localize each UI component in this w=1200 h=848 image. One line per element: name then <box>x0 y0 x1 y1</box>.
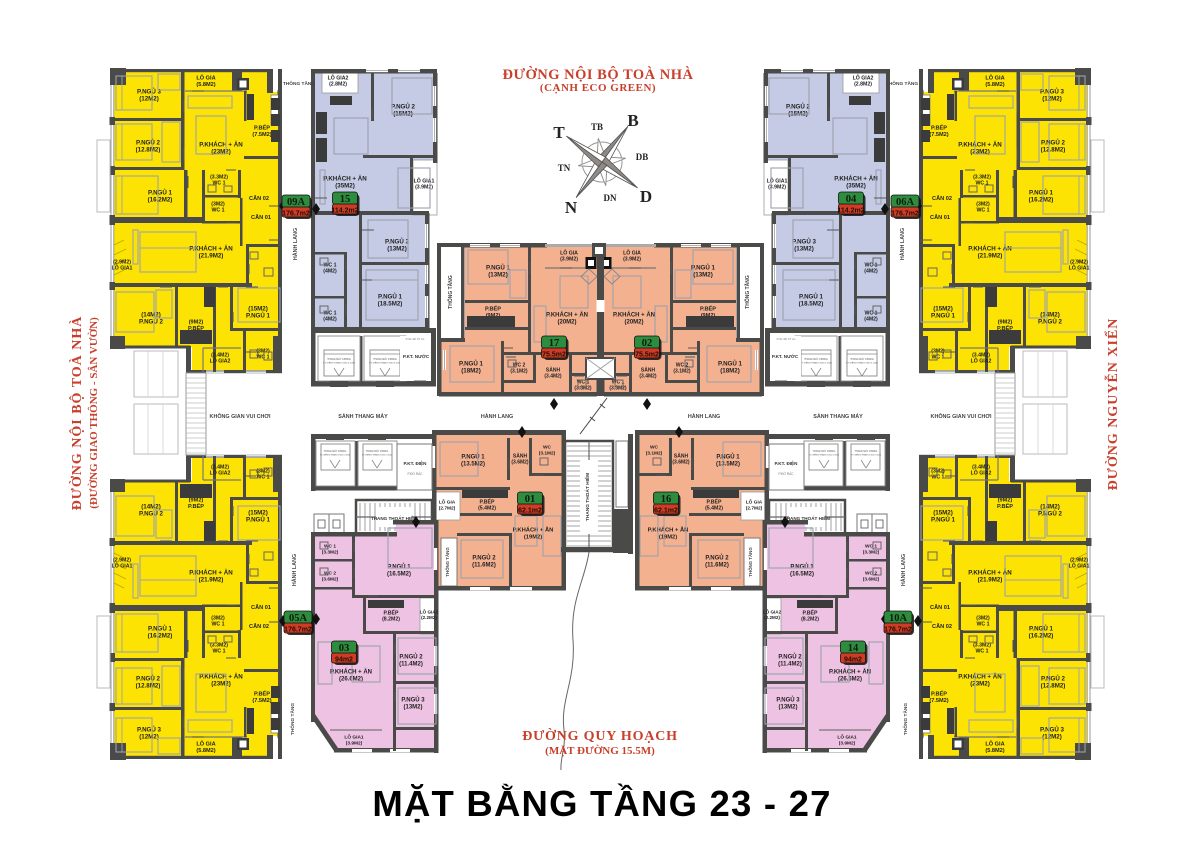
svg-text:10A: 10A <box>889 613 908 624</box>
svg-text:(3.6M2): (3.6M2) <box>322 576 339 582</box>
svg-text:(5.4M2): (5.4M2) <box>705 506 723 512</box>
svg-text:(12M2): (12M2) <box>1042 734 1062 741</box>
svg-text:(3M2): (3M2) <box>976 202 990 208</box>
svg-text:LÔ GIA: LÔ GIA <box>985 740 1004 748</box>
svg-text:DN: DN <box>604 193 617 203</box>
svg-text:P.NGỦ 1: P.NGỦ 1 <box>1029 190 1054 197</box>
svg-text:(3.4M2): (3.4M2) <box>639 374 657 380</box>
svg-text:LÔ GIA: LÔ GIA <box>560 249 578 257</box>
svg-text:94m2: 94m2 <box>844 657 862 664</box>
svg-text:(3.1M2): (3.1M2) <box>673 369 691 375</box>
svg-text:CĂN 01: CĂN 01 <box>251 214 271 221</box>
svg-text:CĂN 01: CĂN 01 <box>251 604 271 611</box>
svg-text:LÔ GIA1: LÔ GIA1 <box>1069 562 1090 570</box>
svg-text:(2.2M2): (2.2M2) <box>421 615 437 620</box>
svg-text:(23M2): (23M2) <box>970 681 990 688</box>
svg-text:(23M2): (23M2) <box>970 149 990 156</box>
svg-text:P.NGỦ 2: P.NGỦ 2 <box>139 319 164 326</box>
svg-text:14: 14 <box>848 643 859 654</box>
svg-text:(3.1M2): (3.1M2) <box>646 450 663 456</box>
svg-text:(5.4M2): (5.4M2) <box>478 506 496 512</box>
svg-text:HÀNH LANG: HÀNH LANG <box>899 228 906 260</box>
svg-text:LÔ GIA2: LÔ GIA2 <box>971 357 992 365</box>
svg-text:(4M2): (4M2) <box>323 269 337 275</box>
svg-text:KT GIẾNG THANG 1900 X 2000: KT GIẾNG THANG 1900 X 2000 <box>320 453 351 456</box>
svg-text:P.NGỦ 3: P.NGỦ 3 <box>1040 727 1065 734</box>
svg-text:(13M2): (13M2) <box>794 246 814 253</box>
svg-text:LÔ GIA: LÔ GIA <box>196 740 215 748</box>
svg-text:SẢNH: SẢNH <box>546 367 561 374</box>
svg-text:(9M2): (9M2) <box>998 498 1013 504</box>
svg-text:P.BẾP: P.BẾP <box>707 499 722 506</box>
svg-text:WC 2: WC 2 <box>865 571 877 577</box>
svg-text:(7.5M2): (7.5M2) <box>929 698 948 704</box>
svg-text:LÔ GIA1: LÔ GIA1 <box>1069 264 1090 272</box>
svg-text:KHÔNG GIAN VUI CHƠI: KHÔNG GIAN VUI CHƠI <box>931 412 992 420</box>
svg-text:75.5m2: 75.5m2 <box>542 352 566 359</box>
svg-text:B: B <box>627 111 638 130</box>
svg-text:P.NGỦ 2: P.NGỦ 2 <box>1038 511 1063 518</box>
svg-text:P.ĐỔ RÁC: P.ĐỔ RÁC <box>779 471 795 476</box>
svg-text:(16.2M2): (16.2M2) <box>148 197 173 204</box>
svg-text:P.BẾP: P.BẾP <box>188 503 204 510</box>
svg-text:(2.9M2): (2.9M2) <box>113 260 131 266</box>
svg-text:(3.3M2): (3.3M2) <box>210 175 228 181</box>
svg-text:P.NGỦ 1: P.NGỦ 1 <box>148 626 173 633</box>
svg-text:(3.1M2): (3.1M2) <box>510 369 528 375</box>
svg-text:KT GIẾNG THANG 1900 X 2000: KT GIẾNG THANG 1900 X 2000 <box>800 362 832 365</box>
svg-text:04: 04 <box>846 194 857 205</box>
svg-text:THANG THOÁT HIỂM: THANG THOÁT HIỂM <box>584 473 591 521</box>
svg-text:(23M2): (23M2) <box>211 149 231 156</box>
svg-text:75.5m2: 75.5m2 <box>635 352 659 359</box>
svg-text:114.2m2: 114.2m2 <box>331 208 358 215</box>
svg-text:P.KT. NƯỚC: P.KT. NƯỚC <box>403 352 430 359</box>
svg-text:WC 1: WC 1 <box>977 208 990 214</box>
svg-text:(16.2M2): (16.2M2) <box>148 633 173 640</box>
svg-text:P.KHÁCH + ĂN: P.KHÁCH + ĂN <box>199 142 243 149</box>
svg-text:(3.6M2): (3.6M2) <box>511 460 529 466</box>
svg-text:(20M2): (20M2) <box>557 320 576 326</box>
svg-text:P.NGỦ 2: P.NGỦ 2 <box>391 104 416 111</box>
svg-text:(18.5M2): (18.5M2) <box>799 301 824 308</box>
svg-text:LÔ GIA2: LÔ GIA2 <box>971 469 992 477</box>
svg-text:(3.4M2): (3.4M2) <box>972 465 990 471</box>
svg-text:(18M2): (18M2) <box>461 368 481 375</box>
svg-text:(19M2): (19M2) <box>659 534 677 540</box>
svg-text:P.NGỦ 1: P.NGỦ 1 <box>459 361 484 368</box>
svg-text:(35M2): (35M2) <box>335 183 355 190</box>
svg-text:(15M2): (15M2) <box>933 510 953 517</box>
svg-text:WC 1: WC 1 <box>976 649 989 655</box>
svg-text:HÀNH LANG: HÀNH LANG <box>688 413 720 420</box>
svg-text:WC 1: WC 1 <box>212 622 225 628</box>
svg-text:P.NGỦ 2: P.NGỦ 2 <box>705 555 729 562</box>
svg-text:62.1m2: 62.1m2 <box>654 508 678 515</box>
svg-text:WC 2: WC 2 <box>324 571 336 577</box>
svg-text:SẢNH: SẢNH <box>674 453 689 460</box>
svg-text:(12M2): (12M2) <box>139 96 159 103</box>
svg-text:KT GIẾNG THANG 1900 X 2000: KT GIẾNG THANG 1900 X 2000 <box>846 362 878 365</box>
svg-text:P.KT. NƯỚC: P.KT. NƯỚC <box>772 352 799 359</box>
svg-text:HÀNH LANG: HÀNH LANG <box>900 554 907 586</box>
svg-text:(13.5M2): (13.5M2) <box>716 462 740 468</box>
svg-text:(9M2): (9M2) <box>998 320 1013 326</box>
svg-text:P.BẾP: P.BẾP <box>384 610 399 617</box>
svg-text:P.NGỦ 2: P.NGỦ 2 <box>139 511 164 518</box>
svg-text:(3M2): (3M2) <box>211 202 225 208</box>
svg-text:WC 1: WC 1 <box>977 622 990 628</box>
svg-text:KT GIẾNG THANG 1900 X 2000: KT GIẾNG THANG 1900 X 2000 <box>809 453 840 456</box>
svg-text:LÔ GIA1: LÔ GIA1 <box>414 177 435 185</box>
svg-text:THÔNG TẦNG: THÔNG TẦNG <box>743 275 751 309</box>
svg-text:(3.6M2): (3.6M2) <box>863 576 880 582</box>
svg-text:LÔ GIA1: LÔ GIA1 <box>112 562 133 570</box>
svg-text:(16.5M2): (16.5M2) <box>790 572 814 578</box>
svg-text:THANG MÁY 1350KG: THANG MÁY 1350KG <box>855 450 878 453</box>
svg-text:WC 1: WC 1 <box>213 649 226 655</box>
svg-text:P.NGỦ 1: P.NGỦ 1 <box>716 454 740 461</box>
svg-text:P.NGỦ 2: P.NGỦ 2 <box>1041 140 1066 147</box>
svg-text:P.KHÁCH + ĂN: P.KHÁCH + ĂN <box>330 669 372 676</box>
svg-text:P.KHÁCH + ĂN: P.KHÁCH + ĂN <box>323 176 367 183</box>
svg-text:(2.7M2): (2.7M2) <box>746 505 763 511</box>
svg-text:(23M2): (23M2) <box>211 681 231 688</box>
svg-text:P.BẾP: P.BẾP <box>254 125 270 132</box>
svg-text:SẢNH THANG MÁY: SẢNH THANG MÁY <box>813 413 863 420</box>
svg-text:P.KHÁCH + ĂN: P.KHÁCH + ĂN <box>513 527 554 534</box>
svg-text:KT GIẾNG THANG 1900 X 2000: KT GIẾNG THANG 1900 X 2000 <box>851 453 882 456</box>
svg-text:T: T <box>553 123 565 142</box>
svg-text:(8.2M2): (8.2M2) <box>801 617 819 623</box>
svg-text:03: 03 <box>339 643 350 654</box>
svg-text:P.NGỦ 1: P.NGỦ 1 <box>461 454 485 461</box>
svg-text:HÀNH LANG: HÀNH LANG <box>292 228 299 260</box>
svg-text:KT GIẾNG THANG 1900 X 2000: KT GIẾNG THANG 1900 X 2000 <box>323 362 355 365</box>
svg-text:(9M2): (9M2) <box>189 320 204 326</box>
svg-text:(3.4M2): (3.4M2) <box>211 465 229 471</box>
svg-text:(9M2): (9M2) <box>189 498 204 504</box>
svg-text:P.NGỦ 3: P.NGỦ 3 <box>385 239 410 246</box>
svg-text:P.NGỦ 1: P.NGỦ 1 <box>691 265 716 272</box>
svg-text:P.NGỦ 1: P.NGỦ 1 <box>1029 626 1054 633</box>
svg-text:HÀNH LANG: HÀNH LANG <box>291 554 298 586</box>
svg-text:N: N <box>565 198 578 217</box>
svg-text:P.NGỦ 2: P.NGỦ 2 <box>778 654 802 661</box>
svg-text:(12M2): (12M2) <box>139 734 159 741</box>
svg-text:176.7m2: 176.7m2 <box>884 627 912 634</box>
svg-text:(12.8M2): (12.8M2) <box>1041 683 1066 690</box>
svg-text:KT GIẾNG THANG 1900 X 2000: KT GIẾNG THANG 1900 X 2000 <box>369 362 401 365</box>
svg-text:LÔ GIA1: LÔ GIA1 <box>112 264 133 272</box>
svg-text:P.KHÁCH + ĂN: P.KHÁCH + ĂN <box>968 246 1012 253</box>
svg-text:(11.4M2): (11.4M2) <box>399 662 423 668</box>
svg-text:(18.5M2): (18.5M2) <box>378 301 403 308</box>
svg-text:P.BẾP: P.BẾP <box>803 610 818 617</box>
svg-text:CĂN 01: CĂN 01 <box>930 214 950 221</box>
svg-text:(3M2): (3M2) <box>211 616 225 622</box>
svg-text:WC: WC <box>543 445 552 451</box>
svg-text:KT.Đ. ĐK KT LG: KT.Đ. ĐK KT LG <box>406 337 425 341</box>
svg-text:(15M2): (15M2) <box>933 306 953 313</box>
svg-text:P.NGỦ 3: P.NGỦ 3 <box>792 239 817 246</box>
svg-text:LÔ GIA: LÔ GIA <box>623 249 641 257</box>
svg-text:(13M2): (13M2) <box>693 272 713 279</box>
svg-text:(4M2): (4M2) <box>864 317 878 323</box>
svg-text:TN: TN <box>558 163 571 173</box>
svg-text:SẢNH: SẢNH <box>641 367 656 374</box>
svg-text:09A: 09A <box>287 197 306 208</box>
svg-text:P.KHÁCH + ĂN: P.KHÁCH + ĂN <box>968 570 1012 577</box>
svg-text:(12.8M2): (12.8M2) <box>136 147 161 154</box>
svg-text:CĂN 01: CĂN 01 <box>930 604 950 611</box>
svg-text:SẢNH THANG MÁY: SẢNH THANG MÁY <box>338 413 388 420</box>
svg-text:P.BẾP: P.BẾP <box>480 499 495 506</box>
svg-text:P.NGỦ 1: P.NGỦ 1 <box>387 564 411 571</box>
svg-text:16: 16 <box>661 494 672 505</box>
svg-text:06A: 06A <box>896 197 915 208</box>
svg-text:P.NGỦ 3: P.NGỦ 3 <box>401 697 425 704</box>
svg-text:P.NGỦ 3: P.NGỦ 3 <box>1040 89 1065 96</box>
svg-text:176.7m2: 176.7m2 <box>282 211 310 218</box>
svg-text:P.NGỦ 1: P.NGỦ 1 <box>148 190 173 197</box>
svg-text:P.NGỦ 1: P.NGỦ 1 <box>486 265 511 272</box>
svg-text:P.KHÁCH + ĂN: P.KHÁCH + ĂN <box>829 669 871 676</box>
svg-text:CĂN 02: CĂN 02 <box>932 623 952 630</box>
svg-text:P.NGỦ 3: P.NGỦ 3 <box>776 697 800 704</box>
svg-text:P.NGỦ 1: P.NGỦ 1 <box>931 517 956 524</box>
svg-text:(2.7M2): (2.7M2) <box>439 505 456 511</box>
svg-text:P.NGỦ 2: P.NGỦ 2 <box>786 104 811 111</box>
svg-text:P.NGỦ 1: P.NGỦ 1 <box>378 294 403 301</box>
svg-text:(3.4M2): (3.4M2) <box>211 353 229 359</box>
svg-text:P.NGỦ 2: P.NGỦ 2 <box>399 654 423 661</box>
svg-text:(5.8M2): (5.8M2) <box>985 748 1004 754</box>
svg-text:THANG MÁY 1350KG: THANG MÁY 1350KG <box>804 358 828 361</box>
svg-text:(5.8M2): (5.8M2) <box>196 82 215 88</box>
svg-text:THANG MÁY 1350KG: THANG MÁY 1350KG <box>373 358 397 361</box>
svg-text:P.NGỦ 1: P.NGỦ 1 <box>799 294 824 301</box>
svg-text:(2.9M2): (2.9M2) <box>113 558 131 564</box>
svg-text:94m2: 94m2 <box>335 657 353 664</box>
svg-text:(21.9M2): (21.9M2) <box>199 253 224 260</box>
svg-text:05A: 05A <box>289 613 308 624</box>
svg-text:P.KHÁCH + ĂN: P.KHÁCH + ĂN <box>958 142 1002 149</box>
svg-text:(2.8M2): (2.8M2) <box>329 82 347 88</box>
svg-text:(4M2): (4M2) <box>323 317 337 323</box>
svg-text:HÀNH LANG: HÀNH LANG <box>481 413 513 420</box>
svg-text:P.BẾP: P.BẾP <box>931 125 947 132</box>
svg-text:LÔ GIA2: LÔ GIA2 <box>210 357 231 365</box>
svg-text:(3.9M2): (3.9M2) <box>346 740 363 746</box>
svg-text:(4M2): (4M2) <box>864 269 878 275</box>
svg-text:(13M2): (13M2) <box>403 705 422 711</box>
svg-text:MẶT BẰNG TẦNG 23 - 27: MẶT BẰNG TẦNG 23 - 27 <box>372 783 831 824</box>
svg-text:(16.2M2): (16.2M2) <box>1029 197 1054 204</box>
svg-text:(13M2): (13M2) <box>778 705 797 711</box>
svg-text:(2.8M2): (2.8M2) <box>854 82 872 88</box>
svg-text:WC: WC <box>650 445 659 451</box>
svg-text:KT.Đ. ĐK KT LG: KT.Đ. ĐK KT LG <box>777 337 796 341</box>
svg-text:01: 01 <box>525 494 536 505</box>
svg-text:THÔNG TẦNG: THÔNG TẦNG <box>446 275 454 309</box>
svg-text:(35M2): (35M2) <box>846 183 866 190</box>
svg-text:17: 17 <box>549 338 560 349</box>
svg-text:P.NGỦ 1: P.NGỦ 1 <box>246 517 271 524</box>
svg-text:P.NGỦ 1: P.NGỦ 1 <box>718 361 743 368</box>
svg-text:LÔ GIA2: LÔ GIA2 <box>763 608 782 615</box>
svg-text:THANG MÁY 1350KG: THANG MÁY 1350KG <box>366 450 389 453</box>
svg-text:P.BẾP: P.BẾP <box>931 691 947 698</box>
svg-text:(MẶT ĐƯỜNG 15.5M): (MẶT ĐƯỜNG 15.5M) <box>545 744 655 757</box>
svg-text:P.KHÁCH + ĂN: P.KHÁCH + ĂN <box>546 312 588 319</box>
svg-text:THANG MÁY 1350KG: THANG MÁY 1350KG <box>813 450 836 453</box>
svg-text:(CẠNH ECO GREEN): (CẠNH ECO GREEN) <box>540 82 656 94</box>
svg-text:LÔ GIA: LÔ GIA <box>985 74 1004 82</box>
svg-text:KHÔNG GIAN VUI CHƠI: KHÔNG GIAN VUI CHƠI <box>210 412 271 420</box>
svg-text:CĂN 02: CĂN 02 <box>249 195 269 202</box>
svg-text:LÔ GIA2: LÔ GIA2 <box>853 74 874 82</box>
svg-text:(13M2): (13M2) <box>387 246 407 253</box>
svg-text:(13M2): (13M2) <box>488 272 508 279</box>
svg-text:(11.6M2): (11.6M2) <box>472 563 496 569</box>
svg-text:LÔ GIA1: LÔ GIA1 <box>767 177 788 185</box>
svg-text:(3.3M2): (3.3M2) <box>609 386 627 392</box>
svg-text:KT GIẾNG THANG 1900 X 2000: KT GIẾNG THANG 1900 X 2000 <box>362 453 393 456</box>
svg-text:THANG MÁY 1350KG: THANG MÁY 1350KG <box>324 450 347 453</box>
svg-text:CĂN 02: CĂN 02 <box>249 623 269 630</box>
svg-text:WC 1: WC 1 <box>212 208 225 214</box>
svg-text:(21.9M2): (21.9M2) <box>199 577 224 584</box>
svg-text:ĐƯỜNG NỘI BỘ TOÀ NHÀ: ĐƯỜNG NỘI BỘ TOÀ NHÀ <box>68 316 85 511</box>
svg-text:(3.3M2): (3.3M2) <box>574 386 592 392</box>
svg-text:THÔNG TẦNG: THÔNG TẦNG <box>748 547 753 577</box>
svg-text:(15M2): (15M2) <box>248 510 268 517</box>
svg-text:(20M2): (20M2) <box>624 320 643 326</box>
svg-text:P.NGỦ 2: P.NGỦ 2 <box>1041 676 1066 683</box>
svg-text:(3.9M2): (3.9M2) <box>560 257 578 263</box>
svg-text:THÔNG TẦNG: THÔNG TẦNG <box>445 547 450 577</box>
svg-text:(3.9M2): (3.9M2) <box>839 740 856 746</box>
svg-text:P.KHÁCH + ĂN: P.KHÁCH + ĂN <box>648 527 689 534</box>
svg-text:TB: TB <box>591 122 603 132</box>
svg-text:(3.3M2): (3.3M2) <box>973 175 991 181</box>
svg-text:114.2m2: 114.2m2 <box>837 208 864 215</box>
svg-text:P.NGỦ 2: P.NGỦ 2 <box>472 555 496 562</box>
svg-text:P.NGỦ 2: P.NGỦ 2 <box>1038 319 1063 326</box>
svg-text:(3.6M2): (3.6M2) <box>672 460 690 466</box>
svg-text:CĂN 02: CĂN 02 <box>932 195 952 202</box>
svg-text:LÔ GIA2: LÔ GIA2 <box>210 469 231 477</box>
svg-text:P.BẾP: P.BẾP <box>997 503 1013 510</box>
svg-text:(3.3M2): (3.3M2) <box>322 549 339 555</box>
svg-text:ĐƯỜNG NGUYỄN XIỂN: ĐƯỜNG NGUYỄN XIỂN <box>1103 318 1121 491</box>
svg-text:02: 02 <box>642 338 653 349</box>
svg-text:P.NGỦ 2: P.NGỦ 2 <box>136 140 161 147</box>
svg-text:ĐƯỜNG QUY HOẠCH: ĐƯỜNG QUY HOẠCH <box>522 727 678 744</box>
svg-text:(15M2): (15M2) <box>248 306 268 313</box>
svg-text:62.1m2: 62.1m2 <box>518 508 542 515</box>
svg-text:(8.2M2): (8.2M2) <box>382 617 400 623</box>
svg-text:P.NGỦ 1: P.NGỦ 1 <box>790 564 814 571</box>
svg-text:P.KHÁCH + ĂN: P.KHÁCH + ĂN <box>834 176 878 183</box>
svg-text:(7.5M2): (7.5M2) <box>252 698 271 704</box>
svg-text:DB: DB <box>636 152 649 162</box>
svg-text:15: 15 <box>340 194 351 205</box>
svg-text:P.BẾP: P.BẾP <box>485 306 501 313</box>
svg-text:(2.9M2): (2.9M2) <box>1070 558 1088 564</box>
svg-text:(3.9M2): (3.9M2) <box>623 257 641 263</box>
svg-text:LÔ GIA2: LÔ GIA2 <box>328 74 349 82</box>
svg-text:(5.8M2): (5.8M2) <box>196 748 215 754</box>
svg-text:(12.8M2): (12.8M2) <box>1041 147 1066 154</box>
svg-text:(3.3M2): (3.3M2) <box>863 549 880 555</box>
svg-text:P.BẾP: P.BẾP <box>254 691 270 698</box>
svg-text:(21.9M2): (21.9M2) <box>978 577 1003 584</box>
svg-text:P.ĐỔ RÁC: P.ĐỔ RÁC <box>408 471 424 476</box>
svg-text:ĐƯỜNG NỘI BỘ TOÀ NHÀ: ĐƯỜNG NỘI BỘ TOÀ NHÀ <box>502 66 693 83</box>
svg-text:(21.9M2): (21.9M2) <box>978 253 1003 260</box>
svg-text:(2.9M2): (2.9M2) <box>1070 260 1088 266</box>
svg-text:(11.4M2): (11.4M2) <box>778 662 802 668</box>
svg-text:(18M2): (18M2) <box>720 368 740 375</box>
svg-text:(3.1M2): (3.1M2) <box>539 450 556 456</box>
svg-text:(7.5M2): (7.5M2) <box>929 132 948 138</box>
svg-text:(12M2): (12M2) <box>1042 96 1062 103</box>
svg-text:(16.2M2): (16.2M2) <box>1029 633 1054 640</box>
svg-text:P.KT. ĐIỆN: P.KT. ĐIỆN <box>775 459 799 466</box>
svg-text:LÔ GIA2: LÔ GIA2 <box>420 608 439 615</box>
svg-text:(13.5M2): (13.5M2) <box>461 462 485 468</box>
svg-text:(2.2M2): (2.2M2) <box>764 615 780 620</box>
svg-text:P.NGỦ 1: P.NGỦ 1 <box>931 313 956 320</box>
svg-text:(3.4M2): (3.4M2) <box>544 374 562 380</box>
svg-text:P.NGỦ 3: P.NGỦ 3 <box>137 727 162 734</box>
svg-text:LÔ GIA: LÔ GIA <box>196 74 215 82</box>
svg-text:176.7m2: 176.7m2 <box>891 211 919 218</box>
svg-text:THANG MÁY 1350KG: THANG MÁY 1350KG <box>327 358 351 361</box>
svg-text:176.7m2: 176.7m2 <box>284 627 312 634</box>
svg-text:P.KT. ĐIỆN: P.KT. ĐIỆN <box>404 459 428 466</box>
svg-text:(11.6M2): (11.6M2) <box>705 563 729 569</box>
svg-text:(12.8M2): (12.8M2) <box>136 683 161 690</box>
svg-text:D: D <box>640 187 652 206</box>
svg-text:(3M2): (3M2) <box>976 616 990 622</box>
svg-text:(7.5M2): (7.5M2) <box>252 132 271 138</box>
svg-text:(3.4M2): (3.4M2) <box>972 353 990 359</box>
svg-text:(16.5M2): (16.5M2) <box>387 572 411 578</box>
svg-text:P.BẾP: P.BẾP <box>700 306 716 313</box>
svg-text:P.KHÁCH + ĂN: P.KHÁCH + ĂN <box>613 312 655 319</box>
svg-text:(ĐƯỜNG GIAO THÔNG - SÂN VƯỜN): (ĐƯỜNG GIAO THÔNG - SÂN VƯỜN) <box>87 317 100 509</box>
svg-text:(5.8M2): (5.8M2) <box>985 82 1004 88</box>
svg-text:P.NGỦ 1: P.NGỦ 1 <box>246 313 271 320</box>
svg-text:THANG MÁY 1350KG: THANG MÁY 1350KG <box>850 358 874 361</box>
svg-text:SẢNH: SẢNH <box>513 453 528 460</box>
svg-text:(19M2): (19M2) <box>524 534 542 540</box>
svg-text:P.NGỦ 2: P.NGỦ 2 <box>136 676 161 683</box>
